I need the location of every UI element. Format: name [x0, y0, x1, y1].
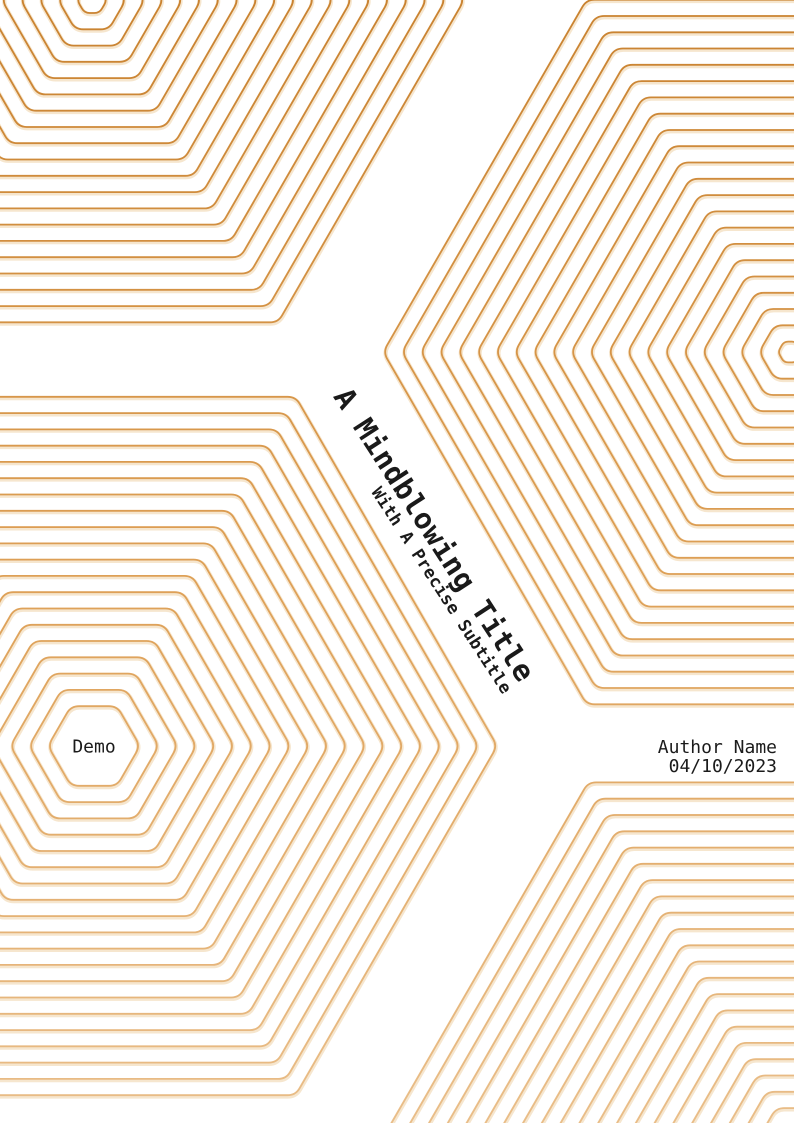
hexagon-ring-glow — [0, 447, 439, 1048]
hexagon-ring-glow — [517, 115, 794, 592]
hexagon-ring-glow — [0, 0, 256, 145]
hexagon-ring-glow — [4, 0, 180, 79]
hexagon-pattern-layer — [0, 0, 794, 1123]
demo-badge: Demo — [72, 737, 115, 758]
hexagon-group-bottom-right — [380, 782, 794, 1123]
hexagon-ring — [648, 228, 794, 477]
author-block: Author Name 04/10/2023 — [658, 738, 777, 777]
hexagon-ring-glow — [743, 310, 794, 396]
hexagon-ring-glow — [0, 0, 293, 177]
hexagon-ring-glow — [630, 213, 794, 494]
hexagon-ring — [568, 945, 794, 1123]
author-name: Author Name — [658, 738, 777, 757]
hexagon-ring — [41, 0, 142, 46]
hexagon-ring-glow — [0, 0, 275, 161]
hexagon-ring — [517, 114, 794, 591]
hexagon-ring — [630, 211, 794, 492]
publication-date: 04/10/2023 — [658, 757, 777, 776]
hexagon-ring — [0, 560, 307, 933]
hexagon-ring — [0, 446, 439, 1047]
hexagon-ring — [4, 0, 180, 78]
title-page: A Mindblowing Title With A Precise Subti… — [0, 0, 794, 1123]
hexagon-group-top-left — [0, 0, 463, 324]
hexagon-ring-glow — [0, 561, 308, 934]
hexagon-ring-glow — [649, 229, 794, 478]
hexagon-ring-glow — [719, 1077, 794, 1123]
hexagon-ring-glow — [42, 0, 143, 47]
hexagon-ring — [0, 625, 232, 867]
hexagon-ring-glow — [569, 947, 794, 1123]
hexagon-ring-glow — [0, 626, 232, 868]
